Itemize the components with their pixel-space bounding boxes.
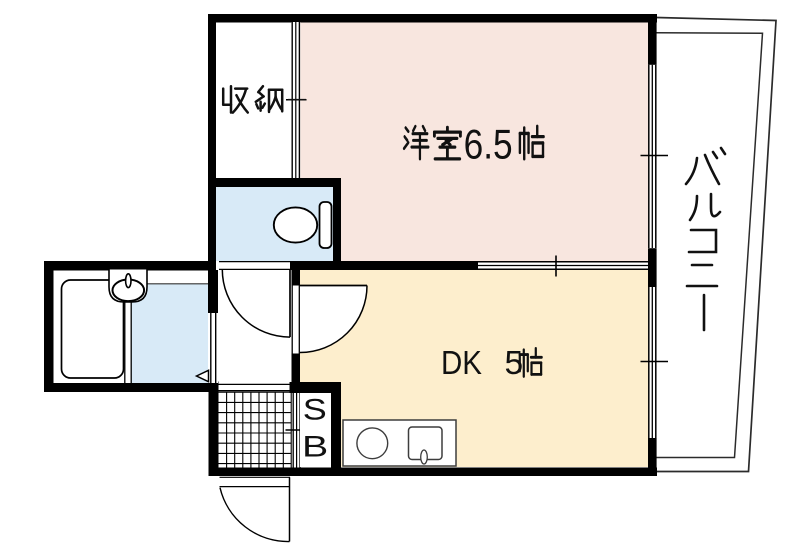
svg-text:B: B bbox=[302, 430, 328, 463]
svg-text:DK: DK bbox=[441, 345, 483, 382]
svg-text:6.5: 6.5 bbox=[464, 121, 513, 168]
svg-text:S: S bbox=[303, 393, 327, 426]
